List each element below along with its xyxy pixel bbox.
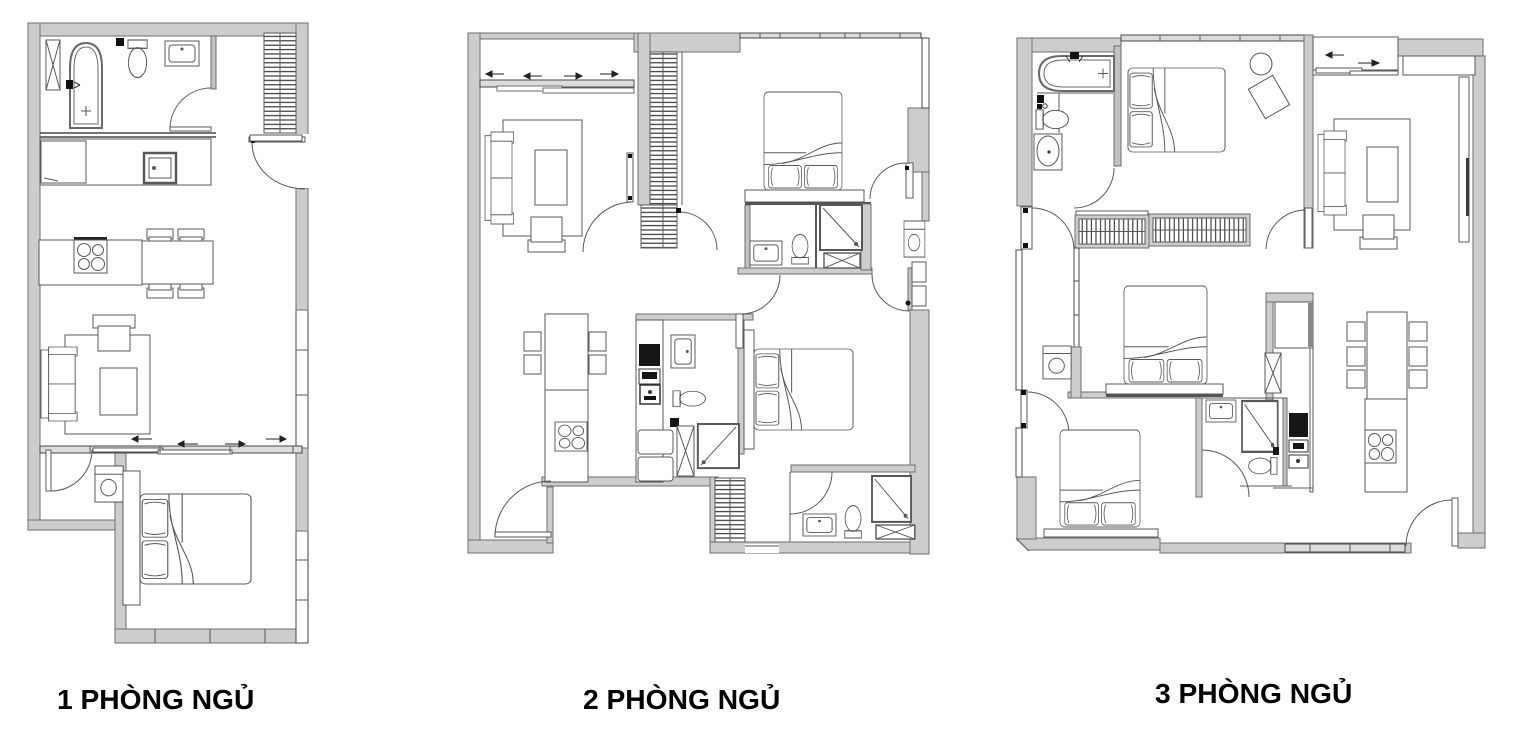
svg-text:2 PHÒNG NGỦ: 2 PHÒNG NGỦ: [583, 683, 780, 715]
svg-text:3 PHÒNG NGỦ: 3 PHÒNG NGỦ: [1155, 677, 1352, 709]
svg-text:1 PHÒNG NGỦ: 1 PHÒNG NGỦ: [57, 683, 254, 715]
